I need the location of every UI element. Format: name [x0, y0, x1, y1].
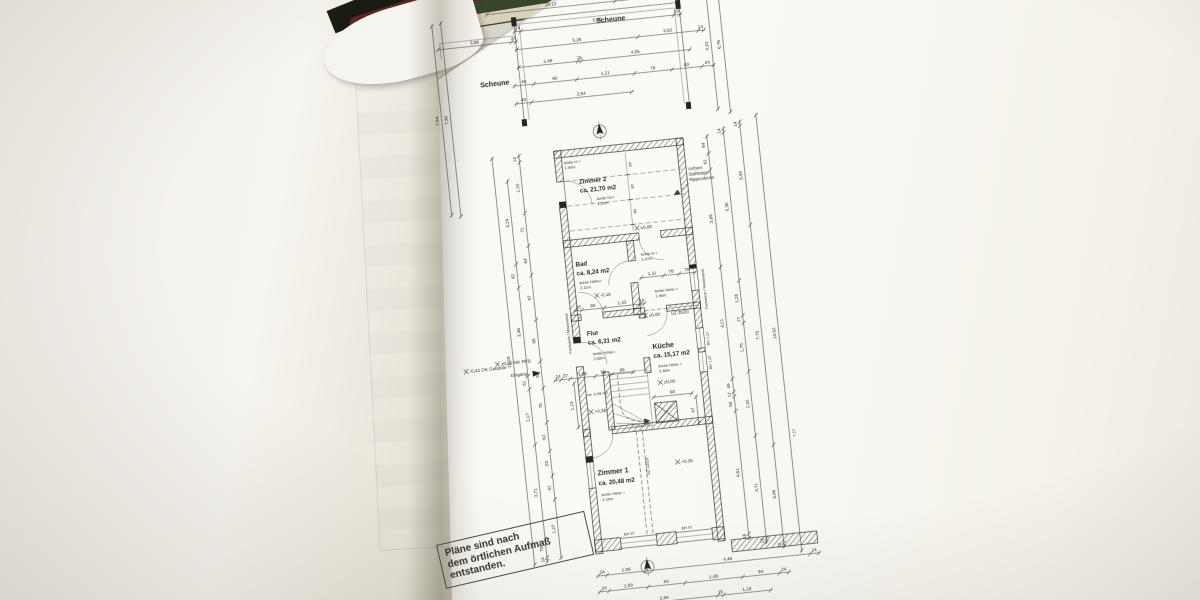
dim-line: [515, 92, 633, 104]
level-marker-text: ±0,00: [664, 378, 676, 384]
dim-text: 47: [690, 407, 696, 413]
dim-line: [513, 65, 715, 86]
dim-text: 64: [523, 258, 529, 264]
dim-line: [519, 155, 562, 560]
dim-text: 4,61: [735, 468, 741, 478]
dim-text: 14: [732, 121, 738, 127]
dim-text: 4,21: [719, 318, 725, 328]
dim-text: 6,76: [716, 39, 722, 49]
dim-text: 1,43: [617, 299, 627, 305]
level-marker-text: -0,16: [600, 292, 611, 298]
dim-text: 1,48: [709, 573, 719, 579]
dim-text: 62: [541, 434, 547, 440]
dim-text: 37: [563, 373, 569, 379]
lobby-height1: 1,97m: [641, 256, 653, 262]
dim-text: 14,92: [771, 327, 777, 339]
dim-text: 2,69: [659, 595, 669, 600]
dim-text: 3,24: [504, 218, 510, 228]
dim-text: 5,52: [704, 41, 710, 51]
dim-text: 12: [777, 542, 783, 548]
dim-text: 15: [639, 297, 645, 303]
extra-dimensions: 7,17858585: [627, 147, 797, 451]
dim-text: 24: [601, 585, 607, 591]
barn-label-left: Scheune: [480, 80, 510, 90]
dim-text: 51: [521, 380, 527, 386]
dim-line: [739, 120, 784, 548]
kueche-height: 2,46m: [659, 367, 671, 373]
dim-text: 68: [670, 389, 676, 395]
bad-height: 2,11m: [580, 284, 592, 290]
level-marker-text: +0,35: [594, 408, 607, 414]
dim-text: 89: [619, 367, 625, 373]
dim-text: 3,98: [470, 39, 480, 45]
dim-text: 79: [684, 267, 690, 273]
dim-text: 2,17: [525, 412, 531, 422]
dim-text: 24: [811, 547, 817, 553]
dim-text: 61: [702, 159, 708, 165]
dimension-chains: 10,135,43245,90245,262,62242,49154,55409…: [423, 0, 825, 600]
level-marker-text: +0,35: [681, 458, 694, 464]
dim-text: 7,54: [434, 116, 440, 126]
room-kueche-area: ca. 15,17 m2: [653, 349, 691, 360]
dim-text: 15: [718, 589, 724, 595]
dim-line: [597, 553, 821, 577]
dim-text: 7,30: [443, 115, 449, 125]
dim-text: 4,55: [630, 49, 640, 55]
dim-text: 3,65: [708, 213, 714, 223]
dim-line: [515, 30, 705, 50]
window-bh97b-label: BH 97: [681, 525, 692, 530]
dim-text: 71: [519, 227, 525, 233]
floor-plan-svg: Scheune Scheune Zimmer 2 ca. 21,70 m2 li…: [415, 0, 862, 600]
dim-text: 92: [510, 273, 516, 279]
dim-text: 2,49: [543, 58, 553, 64]
dim-tick: [613, 0, 618, 3]
dim-text: 94: [663, 578, 669, 584]
extra-dim-text: 7,17: [791, 428, 797, 437]
fachwerk-right-label: Fachwerk / Mauerwerk: [700, 269, 709, 310]
dim-text: 3,46: [771, 489, 777, 499]
room-bad-name: Bad: [575, 260, 588, 268]
photo-of-floor-plan: Scheune Scheune Zimmer 2 ca. 21,70 m2 li…: [0, 0, 1200, 600]
eingang-label: Eingang: [511, 371, 528, 378]
dim-text: 5,26: [572, 37, 582, 43]
dim-text: 1,18: [742, 586, 752, 592]
dim-text: 52: [546, 485, 552, 491]
dim-text: 40: [521, 79, 527, 85]
plan-labels: Scheune Scheune Zimmer 2 ca. 21,70 m2 li…: [475, 8, 752, 547]
dim-text: 10,13: [545, 1, 557, 7]
dim-text: 4,46: [723, 556, 733, 562]
room-flur-name: Flur: [587, 330, 600, 338]
dim-text: 68: [600, 369, 606, 375]
dim-text: 90: [552, 75, 558, 81]
level-marker-text: ±0,00: [640, 224, 652, 230]
dim-text: 64: [700, 142, 706, 148]
dim-line: [574, 382, 579, 429]
dim-text: 7,75: [754, 330, 760, 340]
zimmer2-height2: 1,50m: [597, 200, 609, 206]
dim-text: 2,64: [577, 90, 587, 96]
extra-dim-text: 85: [627, 161, 633, 167]
dim-text: 24: [705, 59, 711, 65]
dim-text: 5,35: [724, 202, 730, 212]
dim-text: 1,06: [578, 371, 588, 377]
extra-dim-text: 85: [629, 183, 635, 189]
extra-dim-text: 85: [632, 208, 638, 214]
dim-text: 14: [759, 538, 765, 544]
dim-text: 24: [511, 35, 517, 41]
dim-text: 3,71: [753, 482, 759, 492]
dim-text: 90: [531, 338, 537, 344]
uz-22-25-label: UZ 22/25: [644, 457, 651, 476]
dim-text: 54: [728, 401, 734, 407]
staircase: [609, 370, 653, 430]
dim-line: [756, 114, 802, 553]
room-zimmer1-area: ca. 20,48 m2: [598, 477, 636, 488]
dim-text: 1,10: [515, 183, 521, 193]
level-marker-text: ±0,00: [648, 312, 660, 318]
dim-text: 2,62: [663, 27, 673, 33]
dim-text: 3,71: [533, 488, 539, 498]
dim-text: 24: [515, 25, 521, 31]
room-bad-area: ca. 8,24 m2: [576, 267, 610, 277]
window-bh127-label: BH 1,27: [705, 331, 710, 345]
dim-text: 97: [526, 295, 532, 301]
dim-text: 24: [781, 566, 787, 572]
dim-text: 17: [727, 392, 733, 398]
zimmer1-height: 2,16m: [602, 496, 614, 502]
section-arrow-icon: [640, 556, 655, 576]
dim-text: 1,00: [624, 582, 634, 588]
dim-text: 14: [716, 128, 722, 134]
chimney: [654, 401, 678, 423]
dim-line: [716, 0, 731, 113]
dim-text: 1,11: [647, 270, 657, 276]
dim-text: 53: [544, 460, 550, 466]
dim-text: 26: [575, 304, 581, 310]
dim-text: 1,26: [733, 293, 739, 303]
dim-text: 1,06: [621, 566, 631, 572]
uz-25-20-label: UZ 25/20: [671, 309, 690, 316]
room-kueche-name: Küche: [652, 342, 674, 351]
dim-text: 94: [758, 568, 764, 574]
dim-text: 1,21: [601, 70, 611, 76]
dim-text: 2,32: [745, 399, 751, 409]
dim-text: 49: [726, 383, 732, 389]
dim-text: 90: [590, 303, 596, 309]
dim-text: 63: [684, 61, 690, 67]
dim-text: 14: [512, 156, 518, 162]
window-bh137-label: BH 1,37: [708, 355, 713, 369]
dim-text: 58: [535, 372, 541, 378]
dim-text: 16: [742, 533, 748, 539]
flur-height: 2,50m: [593, 355, 605, 361]
dim-text: 3,49: [738, 171, 744, 181]
dim-text: 78: [650, 65, 656, 71]
dim-line: [723, 127, 767, 544]
window-bh97a-label: BH 97: [624, 531, 635, 536]
room-zimmer2-area: ca. 21,70 m2: [580, 184, 618, 195]
lobby-height2: 1,96m: [655, 292, 667, 298]
north-arrow-icon: [592, 121, 607, 141]
dim-text: 40: [521, 97, 527, 103]
dim-text: 3,46: [516, 327, 522, 337]
dim-text: 75: [538, 402, 544, 408]
dim-text: 24: [698, 24, 704, 30]
dim-text: 15: [576, 55, 582, 61]
dim-text: 24: [599, 569, 605, 575]
dim-text: 27: [736, 316, 742, 322]
dim-text: 1,75: [739, 342, 745, 352]
dim-text: 1,13: [569, 401, 575, 411]
dim-line: [705, 0, 719, 110]
room-zimmer1-name: Zimmer 1: [597, 467, 629, 477]
dim-text: 5,90: [592, 16, 602, 22]
floor-plan-drawing: Scheune Scheune Zimmer 2 ca. 21,70 m2 li…: [415, 0, 862, 600]
room-flur-area: ca. 6,31 m2: [587, 336, 621, 346]
dim-text: 78: [668, 268, 674, 274]
dim-text: 24: [674, 8, 680, 14]
zimmer2-height: 1,90m: [564, 164, 576, 170]
house-walls: [554, 128, 818, 566]
dim-text: 24: [555, 374, 561, 380]
